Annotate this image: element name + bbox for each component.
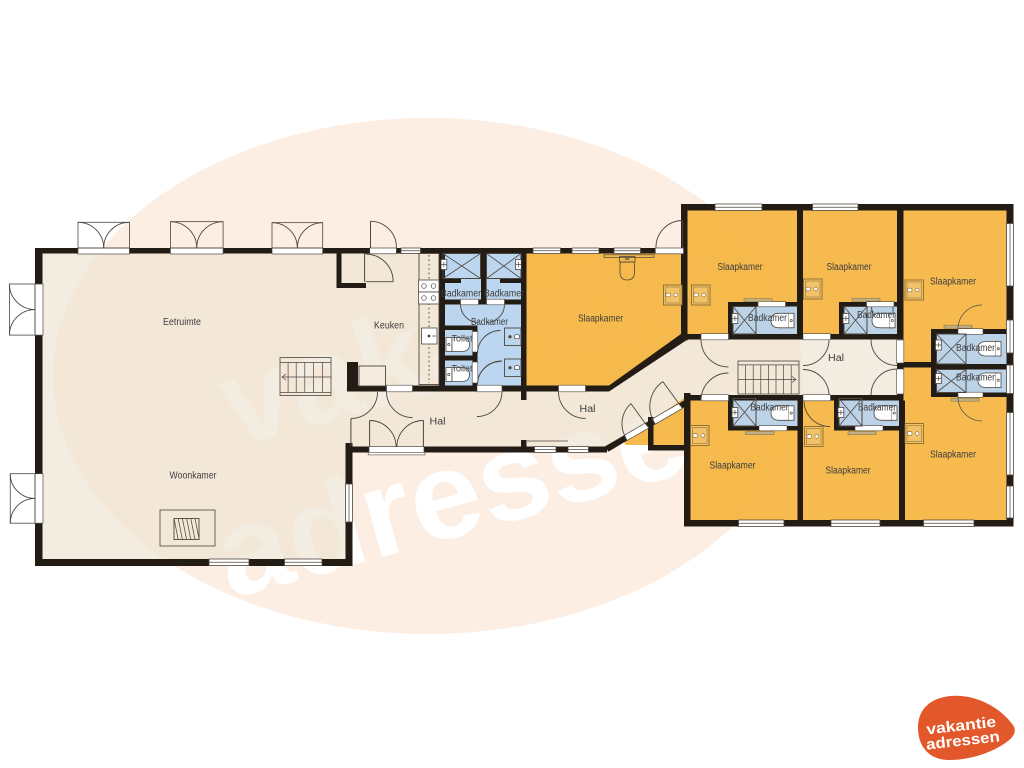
svg-text:Badkamer: Badkamer — [857, 310, 896, 321]
svg-text:Badkamer: Badkamer — [748, 313, 788, 324]
svg-text:Eetruimte: Eetruimte — [163, 317, 201, 328]
svg-text:Badkamer: Badkamer — [956, 343, 996, 354]
svg-text:Hal: Hal — [580, 404, 596, 415]
svg-text:Badkamer: Badkamer — [956, 373, 996, 384]
svg-text:Toilet: Toilet — [452, 334, 473, 345]
svg-text:Slaapkamer: Slaapkamer — [578, 314, 624, 325]
svg-text:Toilet: Toilet — [452, 364, 473, 375]
svg-text:Badkamer: Badkamer — [441, 289, 482, 300]
svg-text:Slaapkamer: Slaapkamer — [710, 461, 757, 472]
svg-text:Hal: Hal — [430, 417, 446, 428]
svg-text:Badkamer: Badkamer — [751, 403, 790, 414]
svg-text:Keuken: Keuken — [374, 321, 404, 332]
svg-text:Hal: Hal — [828, 353, 844, 364]
svg-text:Badkamer: Badkamer — [471, 317, 509, 328]
svg-text:Slaapkamer: Slaapkamer — [826, 466, 872, 477]
svg-text:Slaapkamer: Slaapkamer — [930, 277, 977, 288]
svg-text:Slaapkamer: Slaapkamer — [827, 262, 873, 273]
svg-text:Slaapkamer: Slaapkamer — [930, 450, 977, 461]
svg-text:Slaapkamer: Slaapkamer — [718, 262, 764, 273]
svg-text:Badkamer: Badkamer — [484, 289, 525, 300]
svg-text:Badkamer: Badkamer — [858, 403, 897, 414]
svg-text:Woonkamer: Woonkamer — [170, 471, 218, 482]
